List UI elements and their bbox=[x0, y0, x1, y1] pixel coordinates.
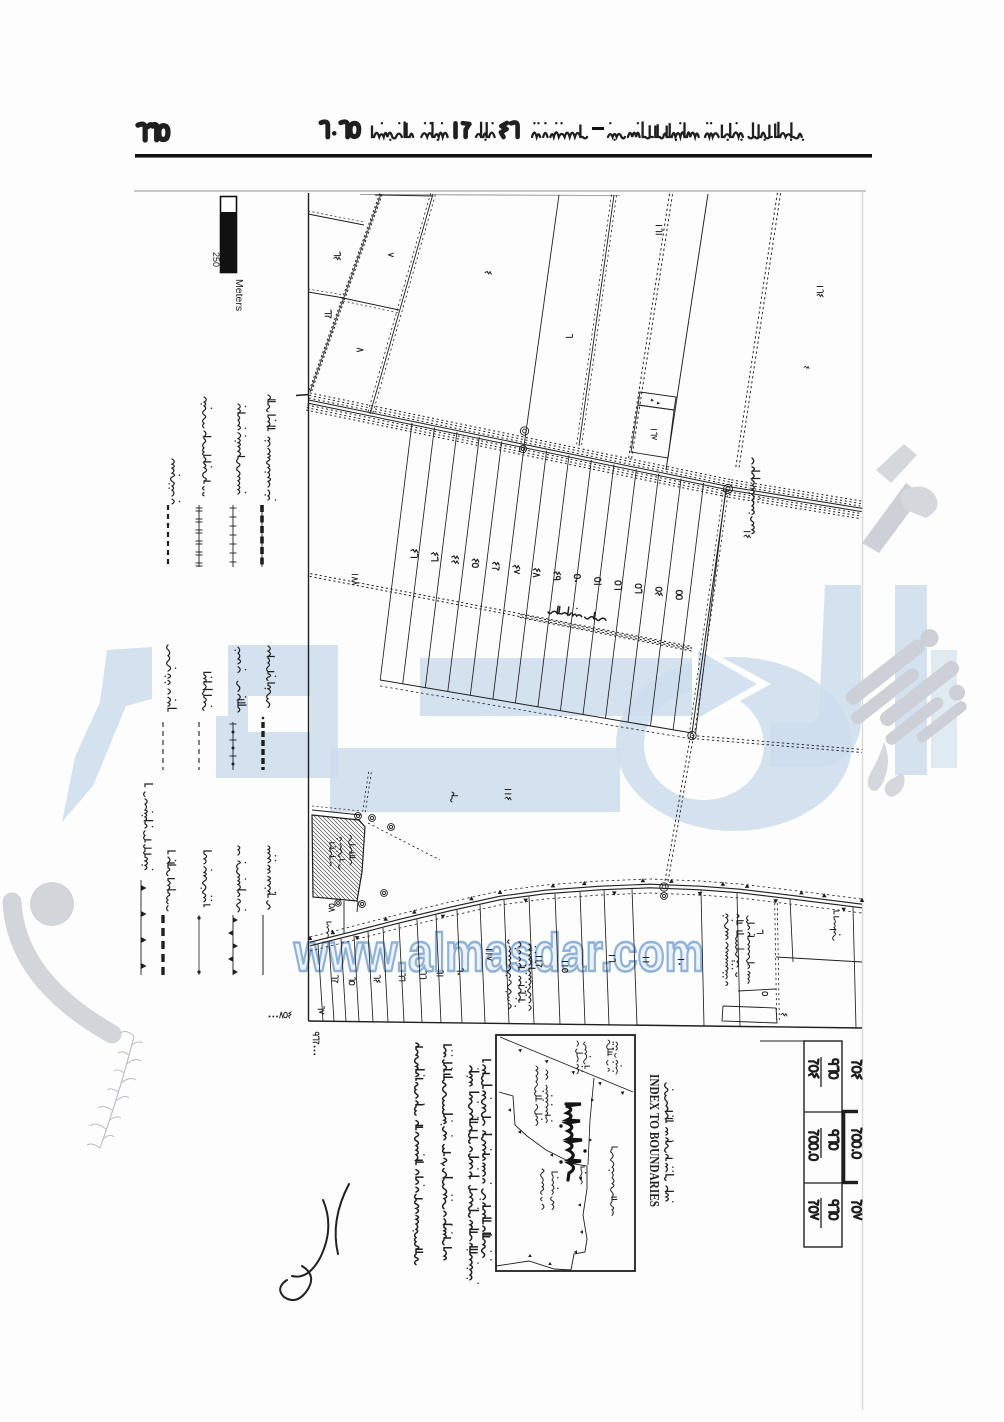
svg-text:INDEX TO BOUNDARIES: INDEX TO BOUNDARIES bbox=[647, 1074, 662, 1207]
svg-text:250: 250 bbox=[211, 252, 221, 267]
svg-text:Meters: Meters bbox=[233, 279, 245, 311]
